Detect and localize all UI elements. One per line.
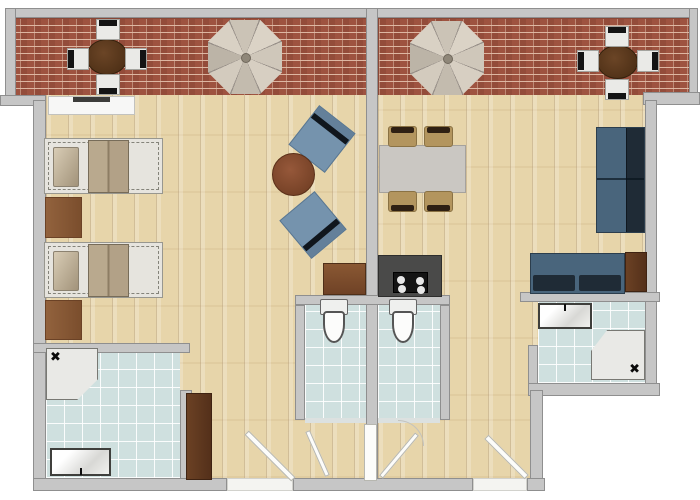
bed-rug-1 bbox=[45, 197, 82, 238]
dining-chair-3 bbox=[388, 191, 417, 212]
dining-chair-4 bbox=[424, 191, 453, 212]
wall-bottom-middle bbox=[293, 478, 473, 491]
dining-chair-1 bbox=[388, 126, 417, 147]
wardrobe bbox=[186, 393, 212, 480]
coffee-table bbox=[272, 153, 315, 196]
dresser bbox=[48, 96, 135, 115]
left-entry-threshold bbox=[227, 478, 293, 491]
side-unit bbox=[625, 252, 647, 292]
dining-table bbox=[379, 145, 466, 193]
wall-divider bbox=[366, 8, 378, 491]
wall-right bbox=[645, 100, 657, 396]
patio-chair-left-top bbox=[96, 19, 120, 40]
right-entry-threshold bbox=[473, 478, 527, 491]
parasol-right bbox=[410, 21, 484, 95]
desk bbox=[323, 263, 366, 295]
bed-2 bbox=[44, 242, 163, 298]
sofa bbox=[596, 127, 645, 233]
terrace-left-floor bbox=[5, 18, 368, 97]
divider-door bbox=[364, 424, 377, 481]
wall-terrace-right bbox=[689, 8, 698, 100]
patio-table-left bbox=[86, 39, 128, 75]
bed-rug-2 bbox=[45, 300, 82, 340]
wall-wc-left bbox=[295, 305, 305, 420]
bed-1 bbox=[44, 138, 163, 194]
parasol-left bbox=[208, 20, 282, 94]
wall-top bbox=[5, 8, 697, 18]
right-sink bbox=[538, 303, 592, 329]
patio-chair-left-left bbox=[67, 48, 89, 70]
wall-terrace-left bbox=[5, 8, 16, 105]
patio-table-right bbox=[597, 45, 638, 79]
patio-chair-right-right bbox=[637, 50, 659, 72]
couch bbox=[530, 253, 625, 294]
dining-chair-2 bbox=[424, 126, 453, 147]
wall-right-bathroom-bottom bbox=[528, 383, 660, 396]
left-sink bbox=[50, 448, 111, 476]
patio-chair-right-top bbox=[605, 26, 629, 47]
wall-bottom-right bbox=[527, 478, 545, 491]
patio-chair-left-right bbox=[125, 48, 147, 70]
patio-chair-right-bottom bbox=[605, 79, 629, 100]
left-wc-sill bbox=[305, 418, 366, 423]
patio-chair-right-left bbox=[577, 50, 599, 72]
right-toilet bbox=[388, 299, 418, 344]
left-toilet bbox=[319, 299, 349, 344]
patio-chair-left-bottom bbox=[96, 74, 120, 95]
floor-plan bbox=[0, 0, 700, 500]
cooktop bbox=[393, 272, 428, 293]
wall-wc-right bbox=[440, 305, 450, 420]
wall-corridor-right bbox=[530, 390, 543, 491]
